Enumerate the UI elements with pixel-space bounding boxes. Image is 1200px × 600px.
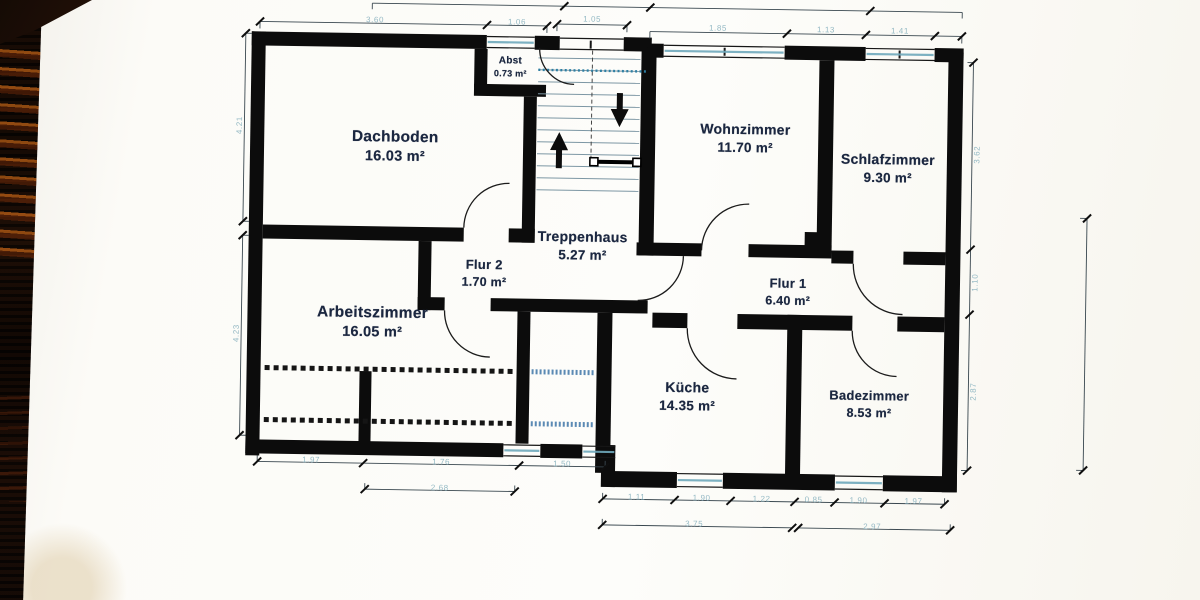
- dimension-label: 2.68: [431, 483, 449, 492]
- room-name: Flur 2: [462, 257, 507, 274]
- dimension-label: 1.90: [850, 496, 868, 505]
- door-abstellraum: [539, 48, 575, 85]
- section-marker-icon: [590, 158, 641, 167]
- room-label-kueche: Küche 14.35 m²: [659, 379, 716, 415]
- dimension-ticks: [234, 0, 1094, 536]
- room-area: 16.05 m²: [317, 322, 428, 342]
- dimension-label: 2.97: [863, 522, 881, 531]
- room-area: 14.35 m²: [659, 397, 715, 415]
- door-badezimmer: [852, 331, 898, 377]
- room-label-flur2: Flur 2 1.70 m²: [461, 257, 506, 290]
- room-name: Dachboden: [352, 127, 439, 148]
- dimension-label: 3.60: [366, 15, 384, 24]
- room-area: 16.03 m²: [351, 147, 438, 167]
- door-kueche: [686, 328, 737, 379]
- room-area: 5.27 m²: [537, 246, 627, 265]
- stairs-down-arrow-icon: [610, 93, 629, 127]
- dimension-label: 3.75: [685, 519, 703, 528]
- dimension-label: 1.06: [508, 17, 526, 26]
- dimension-label: 4.23: [232, 324, 241, 342]
- dimension-label: 0.85: [805, 495, 823, 504]
- stairs-up-arrow-icon: [550, 132, 569, 168]
- dimension-label: 1.97: [905, 497, 923, 506]
- room-name: Treppenhaus: [538, 228, 628, 247]
- room-area: 1.70 m²: [461, 273, 506, 290]
- room-name: Abst: [494, 55, 527, 68]
- door-arcs: [444, 46, 907, 381]
- dimension-label: 1.76: [432, 457, 450, 466]
- dimension-label: 1.22: [753, 494, 771, 503]
- dimension-label: 2.87: [969, 383, 978, 401]
- room-label-flur1: Flur 1 6.40 m²: [765, 275, 810, 308]
- room-name: Wohnzimmer: [700, 120, 790, 139]
- dimension-label: 1.10: [970, 274, 979, 292]
- dimension-label: 1.85: [709, 23, 727, 32]
- door-schlafzimmer: [853, 264, 904, 315]
- room-name: Schlafzimmer: [841, 151, 935, 170]
- door-flur2-arbeitszimmer: [444, 310, 491, 357]
- stair-divider: [591, 51, 593, 167]
- room-area: 0.73 m²: [494, 68, 527, 80]
- room-area: 9.30 m²: [841, 168, 935, 187]
- dimension-label: 1.90: [693, 493, 711, 502]
- dimension-label: 1.05: [583, 15, 601, 24]
- room-label-wohnzimmer: Wohnzimmer 11.70 m²: [700, 120, 791, 157]
- room-name: Flur 1: [765, 275, 810, 292]
- door-treppenhaus-flur1: [638, 255, 684, 301]
- door-flur2-dachboden: [464, 183, 510, 229]
- room-label-treppenhaus: Treppenhaus 5.27 m²: [537, 228, 627, 265]
- room-label-badezimmer: Badezimmer 8.53 m²: [829, 387, 909, 421]
- room-name: Badezimmer: [829, 387, 909, 405]
- room-area: 6.40 m²: [765, 292, 810, 309]
- door-wohnzimmer: [701, 203, 749, 251]
- room-area: 8.53 m²: [829, 404, 909, 421]
- dimension-label: 1.13: [817, 25, 835, 34]
- floor-plan: Dachboden 16.03 m² Abst 0.73 m² Wohnzimm…: [222, 0, 1131, 569]
- dimension-label: 1.11: [628, 492, 646, 501]
- room-name: Arbeitszimmer: [317, 302, 428, 324]
- dimension-label: 4.21: [235, 116, 244, 134]
- dimension-label: 1.97: [302, 455, 320, 464]
- room-label-dachboden: Dachboden 16.03 m²: [351, 127, 438, 167]
- knee-wall-dotted-lines: [264, 368, 595, 425]
- dimension-label: 1.50: [553, 459, 571, 468]
- room-label-schlafzimmer: Schlafzimmer 9.30 m²: [841, 151, 936, 188]
- dimension-label: 3.62: [972, 146, 981, 164]
- room-name: Küche: [659, 379, 715, 398]
- room-area: 11.70 m²: [700, 138, 790, 157]
- dimension-label: 1.41: [891, 26, 909, 35]
- room-label-arbeitszimmer: Arbeitszimmer 16.05 m²: [317, 302, 429, 342]
- room-label-abst: Abst 0.73 m²: [494, 55, 527, 80]
- staircase: [536, 50, 647, 192]
- floor-plan-drawing: [222, 0, 1131, 569]
